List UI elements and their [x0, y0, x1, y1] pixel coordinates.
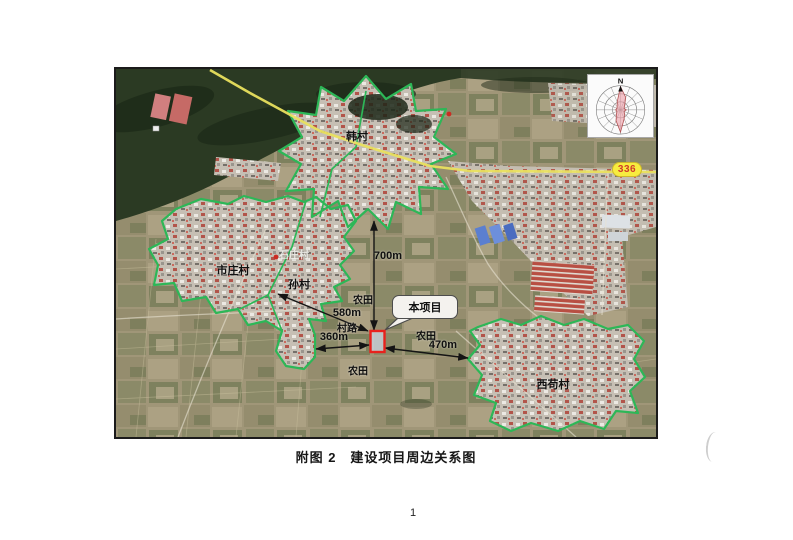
- scan-artifact: [704, 431, 723, 463]
- land-label-farmland-north: 农田: [353, 292, 373, 307]
- basemap-label-shizhuang: 石庄村: [279, 247, 309, 262]
- route-badge-336: 336: [612, 162, 642, 177]
- compass-north-label: N: [618, 77, 624, 86]
- document-page: 韩村 石庄村 市庄村 孙村 西苟村 700m 580m 360m 470m 农田…: [0, 0, 793, 540]
- north-arrow-icon: [618, 86, 622, 92]
- village-label-xigou: 西苟村: [537, 376, 570, 392]
- wind-rose: N: [587, 74, 654, 138]
- poi-dot-west: [274, 255, 279, 260]
- project-callout-label: 本项目: [409, 299, 442, 315]
- page-number: 1: [393, 507, 433, 519]
- project-callout: 本项目: [392, 295, 458, 319]
- wind-rose-diagram: N: [588, 75, 653, 137]
- land-label-farmland-east: 农田: [416, 328, 436, 343]
- land-label-village-road: 村路: [337, 320, 357, 335]
- pond: [348, 94, 408, 120]
- site-map-figure: 韩村 石庄村 市庄村 孙村 西苟村 700m 580m 360m 470m 农田…: [114, 67, 658, 439]
- land-label-farmland-south: 农田: [348, 363, 368, 378]
- village-label-shizhuang: 市庄村: [217, 262, 250, 278]
- distance-label-580m: 580m: [333, 307, 361, 319]
- poi-dot-north: [447, 112, 452, 117]
- pond-small: [396, 115, 432, 133]
- distance-label-700m: 700m: [374, 250, 402, 262]
- village-label-hancun: 韩村: [346, 128, 368, 144]
- basemap-marker-box: [153, 126, 159, 131]
- village-label-suncun: 孙村: [288, 276, 310, 292]
- figure-caption: 附图 2 建设项目周边关系图: [114, 447, 658, 466]
